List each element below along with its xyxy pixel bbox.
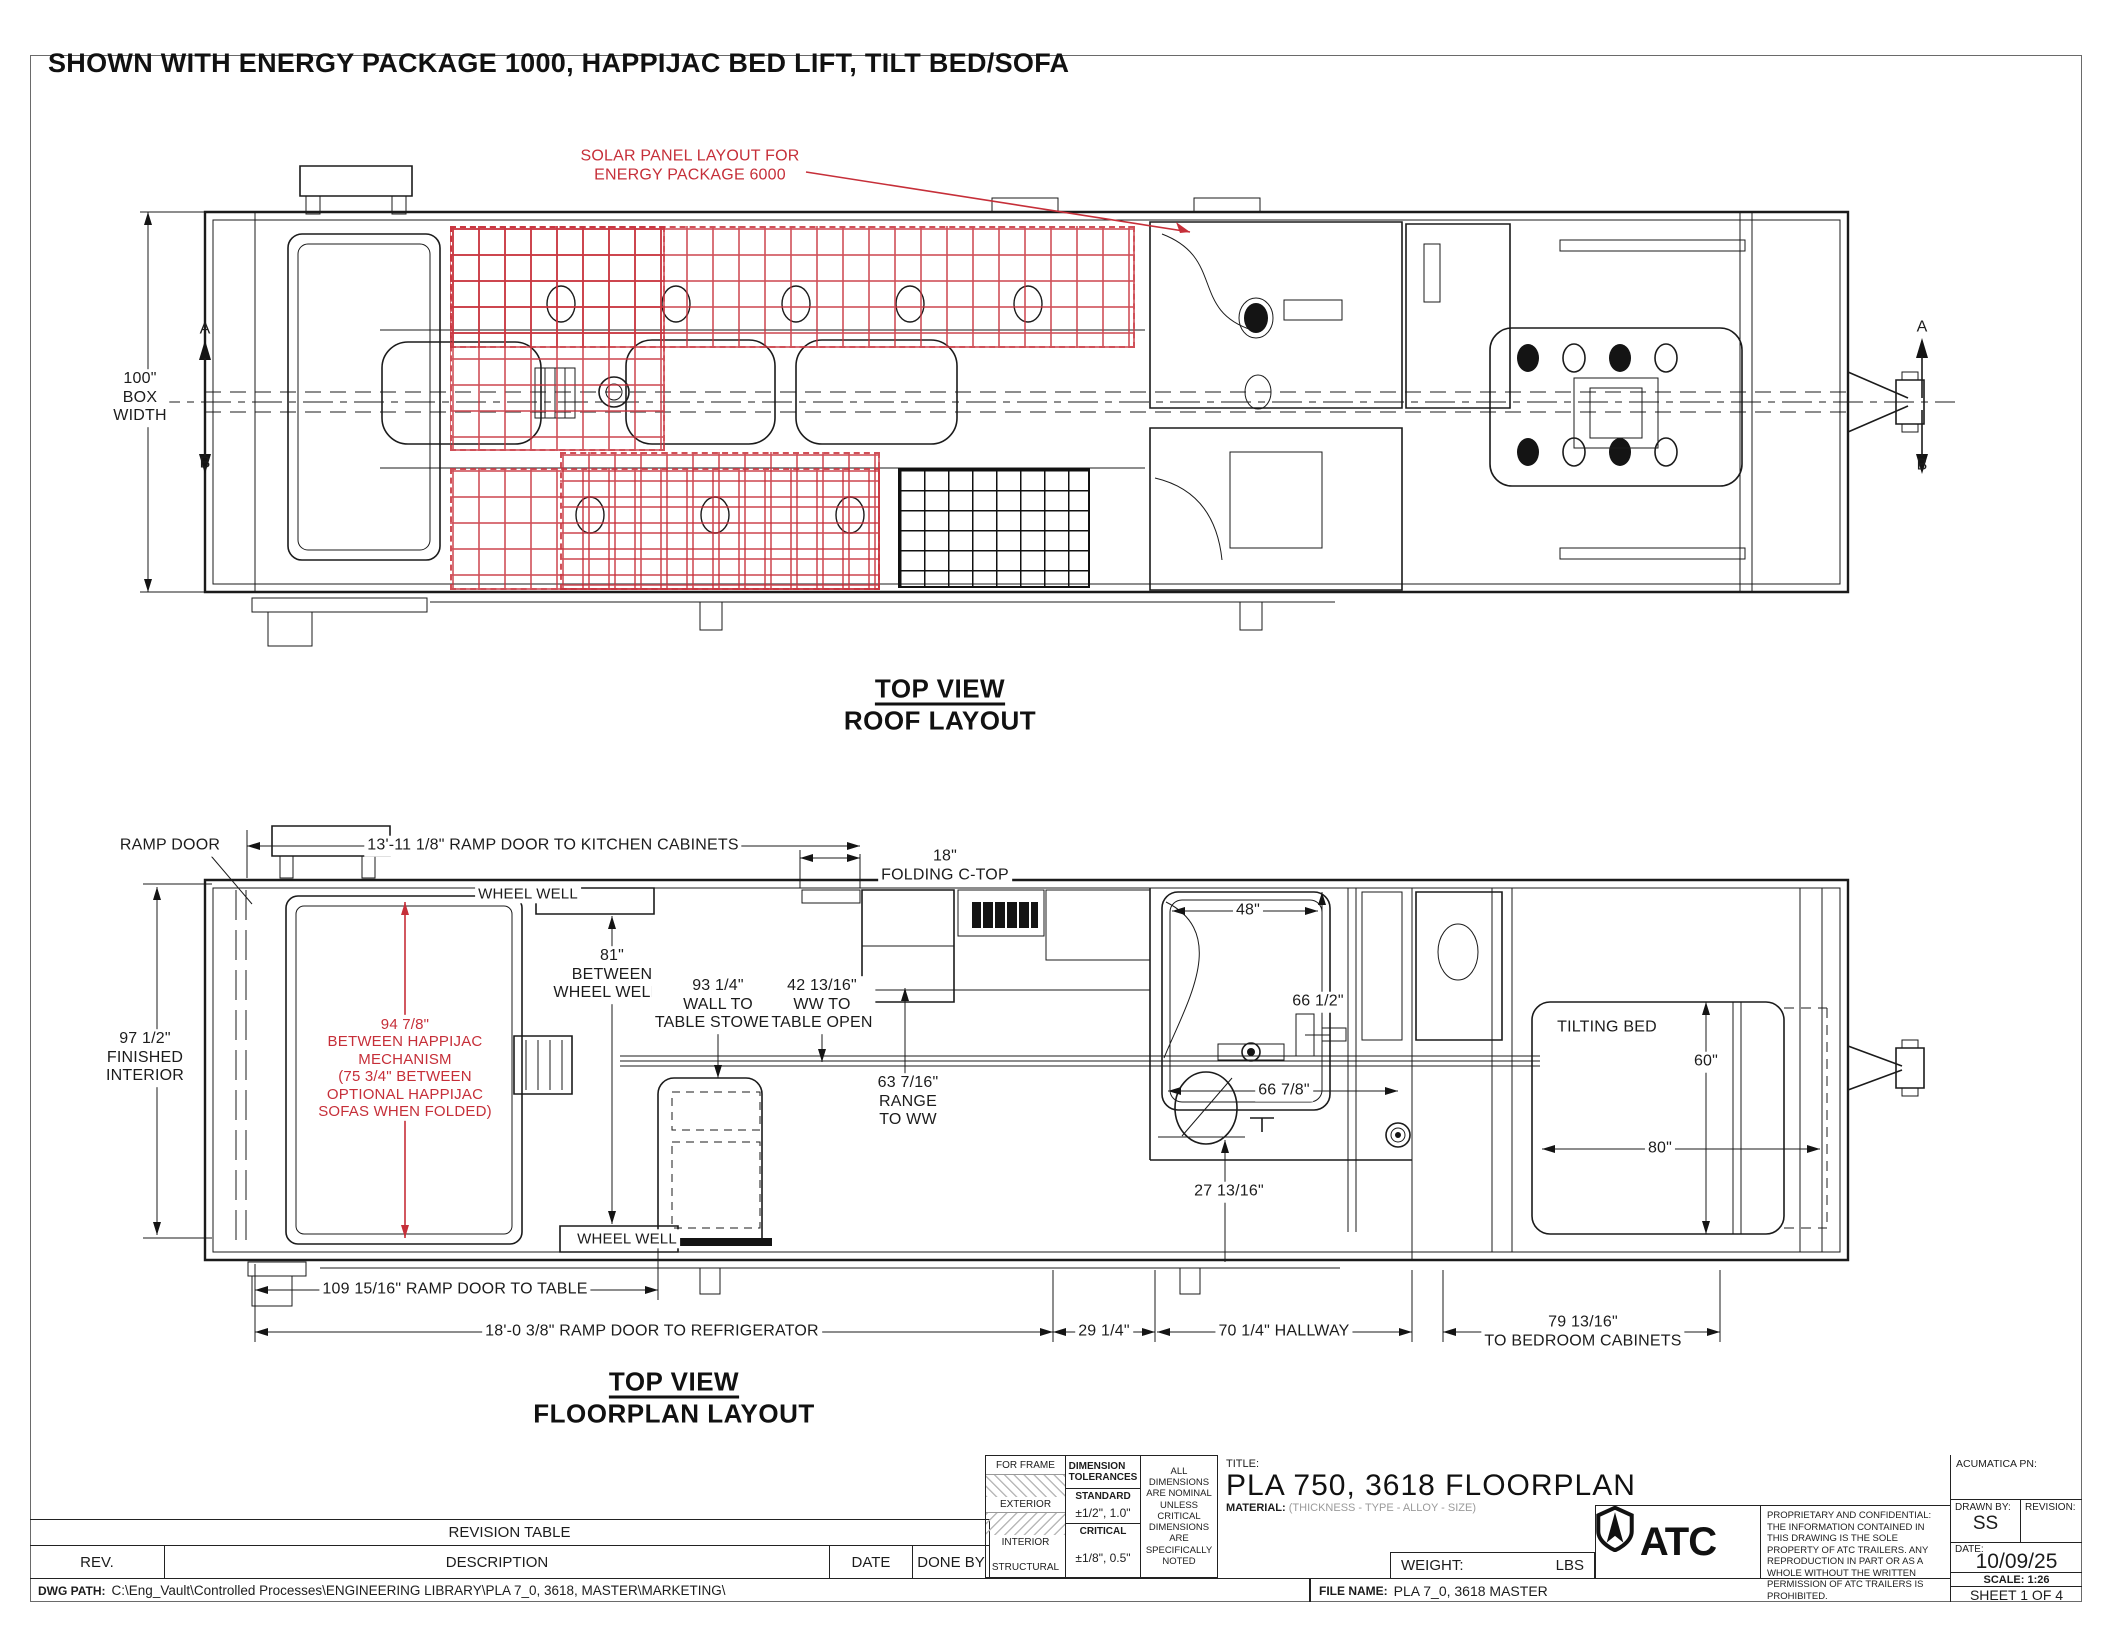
- wheel-well-bottom-label: WHEEL WELL: [574, 1229, 680, 1248]
- dwg-path-label: DWG PATH:: [38, 1584, 106, 1598]
- col-description: DESCRIPTION: [165, 1546, 830, 1578]
- dim-hallway: 70 1/4" HALLWAY: [1215, 1322, 1352, 1343]
- roof-caption-sub: ROOF LAYOUT: [844, 706, 1036, 737]
- for-frame-label: FOR FRAME: [986, 1456, 1065, 1474]
- drawn-by-value: SS: [1955, 1513, 2016, 1535]
- drawing-sheet: SHOWN WITH ENERGY PACKAGE 1000, HAPPIJAC…: [0, 0, 2112, 1632]
- happijac-note: 94 7/8" BETWEEN HAPPIJAC MECHANISM (75 3…: [315, 1015, 495, 1121]
- dim-to-bedroom-cabinets: 79 13/16" TO BEDROOM CABINETS: [1481, 1312, 1684, 1351]
- floor-caption-title: TOP VIEW: [609, 1367, 739, 1398]
- dim-folding-ctop: 18" FOLDING C-TOP: [878, 846, 1012, 885]
- atc-logo-text: ATC: [1640, 1520, 1716, 1565]
- material-value: (THICKNESS - TYPE - ALLOY - SIZE): [1289, 1502, 1476, 1514]
- drawn-by-label: DRAWN BY:: [1955, 1502, 2016, 1513]
- revision-table-columns: REV. DESCRIPTION DATE DONE BY: [30, 1545, 990, 1578]
- floor-caption-sub: FLOORPLAN LAYOUT: [533, 1399, 814, 1430]
- sheet-number-box: SHEET 1 OF 4: [1950, 1586, 2082, 1602]
- revision-table-header: REVISION TABLE: [30, 1519, 990, 1545]
- installed-solar-panel: [898, 468, 1090, 588]
- wheel-well-top-label: WHEEL WELL: [475, 884, 581, 903]
- file-name-value: PLA 7_0, 3618 MASTER: [1394, 1583, 1548, 1599]
- weight-label: WEIGHT:: [1401, 1557, 1464, 1574]
- material-row: MATERIAL: (THICKNESS - TYPE - ALLOY - SI…: [1226, 1502, 1476, 1514]
- section-marker-a-left: A: [197, 320, 214, 341]
- acumatica-pn: ACUMATICA PN:: [1950, 1455, 2082, 1500]
- dim-ramp-to-table: 109 15/16" RAMP DOOR TO TABLE: [319, 1280, 590, 1301]
- exterior-label: EXTERIOR: [986, 1497, 1065, 1512]
- solar-note: SOLAR PANEL LAYOUT FOR ENERGY PACKAGE 60…: [578, 146, 803, 185]
- scale-box: SCALE: 1:26: [1950, 1572, 2082, 1586]
- col-done-by: DONE BY: [913, 1546, 990, 1578]
- file-name-row: FILE NAME: PLA 7_0, 3618 MASTER: [1310, 1578, 1950, 1602]
- proprietary-note: PROPRIETARY AND CONFIDENTIAL: THE INFORM…: [1760, 1505, 1950, 1578]
- dwg-path-row: DWG PATH: C:\Eng_Vault\Controlled Proces…: [30, 1578, 1310, 1602]
- standard-value: ±1/2", 1.0": [1066, 1503, 1140, 1523]
- dim-range-to-ww: 63 7/16" RANGE TO WW: [875, 1073, 942, 1131]
- interior-hatch-swatch: [986, 1512, 1065, 1535]
- tolerance-values-column: DIMENSION TOLERANCES STANDARD ±1/2", 1.0…: [1066, 1456, 1141, 1577]
- dim-shower-48: 48": [1233, 901, 1263, 922]
- solar-panel-grid-bottom-mid: [560, 452, 880, 590]
- dwg-path-value: C:\Eng_Vault\Controlled Processes\ENGINE…: [112, 1583, 726, 1598]
- interior-label: INTERIOR: [986, 1535, 1065, 1550]
- dim-bed-80: 80": [1645, 1139, 1675, 1160]
- dim-finished-interior: 97 1/2" FINISHED INTERIOR: [103, 1029, 187, 1087]
- critical-label: CRITICAL: [1066, 1523, 1140, 1538]
- dim-ramp-to-refrigerator: 18'-0 3/8" RAMP DOOR TO REFRIGERATOR: [482, 1322, 822, 1343]
- section-marker-a-right: A: [1914, 318, 1931, 339]
- sheet-heading: SHOWN WITH ENERGY PACKAGE 1000, HAPPIJAC…: [48, 48, 1069, 79]
- dim-66-half: 66 1/2": [1289, 992, 1347, 1013]
- date-label: DATE:: [1955, 1544, 1984, 1555]
- standard-label: STANDARD: [1066, 1488, 1140, 1503]
- section-marker-b-left: B: [197, 454, 214, 475]
- nominal-dimensions-note: ALL DIMENSIONS ARE NOMINAL UNLESS CRITIC…: [1141, 1456, 1217, 1577]
- col-rev: REV.: [30, 1546, 165, 1578]
- revision-box: REVISION:: [2020, 1500, 2082, 1542]
- material-label: MATERIAL:: [1226, 1502, 1286, 1514]
- weight-box: WEIGHT: LBS: [1390, 1552, 1595, 1578]
- dim-29-quarter: 29 1/4": [1075, 1322, 1133, 1343]
- weight-unit: LBS: [1556, 1557, 1584, 1574]
- exterior-hatch-swatch: [986, 1474, 1065, 1497]
- file-name-label: FILE NAME:: [1319, 1584, 1388, 1598]
- tolerance-frame-column: FOR FRAME EXTERIOR INTERIOR STRUCTURAL: [986, 1456, 1066, 1577]
- dim-box-width: 100" BOX WIDTH: [110, 369, 169, 427]
- date-box: DATE: 10/09/25: [1950, 1542, 2082, 1572]
- drawing-title: PLA 750, 3618 FLOORPLAN: [1226, 1469, 1636, 1503]
- dimension-tolerances-label: DIMENSION TOLERANCES: [1066, 1456, 1140, 1488]
- tolerance-block: FOR FRAME EXTERIOR INTERIOR STRUCTURAL D…: [985, 1455, 1218, 1578]
- dim-66-78: 66 7/8": [1255, 1081, 1313, 1102]
- solar-panel-grid-top-left: [450, 226, 665, 451]
- section-marker-b-right: B: [1914, 456, 1931, 477]
- structural-label: STRUCTURAL: [986, 1550, 1065, 1577]
- critical-value: ±1/8", 0.5": [1066, 1538, 1140, 1577]
- dim-wall-to-table-stowed: 93 1/4" WALL TO TABLE STOWED: [652, 976, 784, 1034]
- atc-shield-icon: [1596, 1506, 1634, 1552]
- drawn-by-box: DRAWN BY: SS: [1950, 1500, 2020, 1542]
- col-date: DATE: [830, 1546, 913, 1578]
- ramp-door-label: RAMP DOOR: [117, 836, 223, 857]
- dim-bed-60: 60": [1691, 1052, 1721, 1073]
- atc-logo: ATC: [1595, 1505, 1760, 1578]
- dim-ww-to-table-open: 42 13/16" WW TO TABLE OPEN: [768, 976, 875, 1034]
- roof-caption-title: TOP VIEW: [875, 674, 1005, 705]
- dim-ramp-to-kitchen: 13'-11 1/8" RAMP DOOR TO KITCHEN CABINET…: [364, 836, 741, 857]
- tilting-bed-label: TILTING BED: [1554, 1018, 1660, 1039]
- dim-27-1316: 27 13/16": [1191, 1182, 1267, 1203]
